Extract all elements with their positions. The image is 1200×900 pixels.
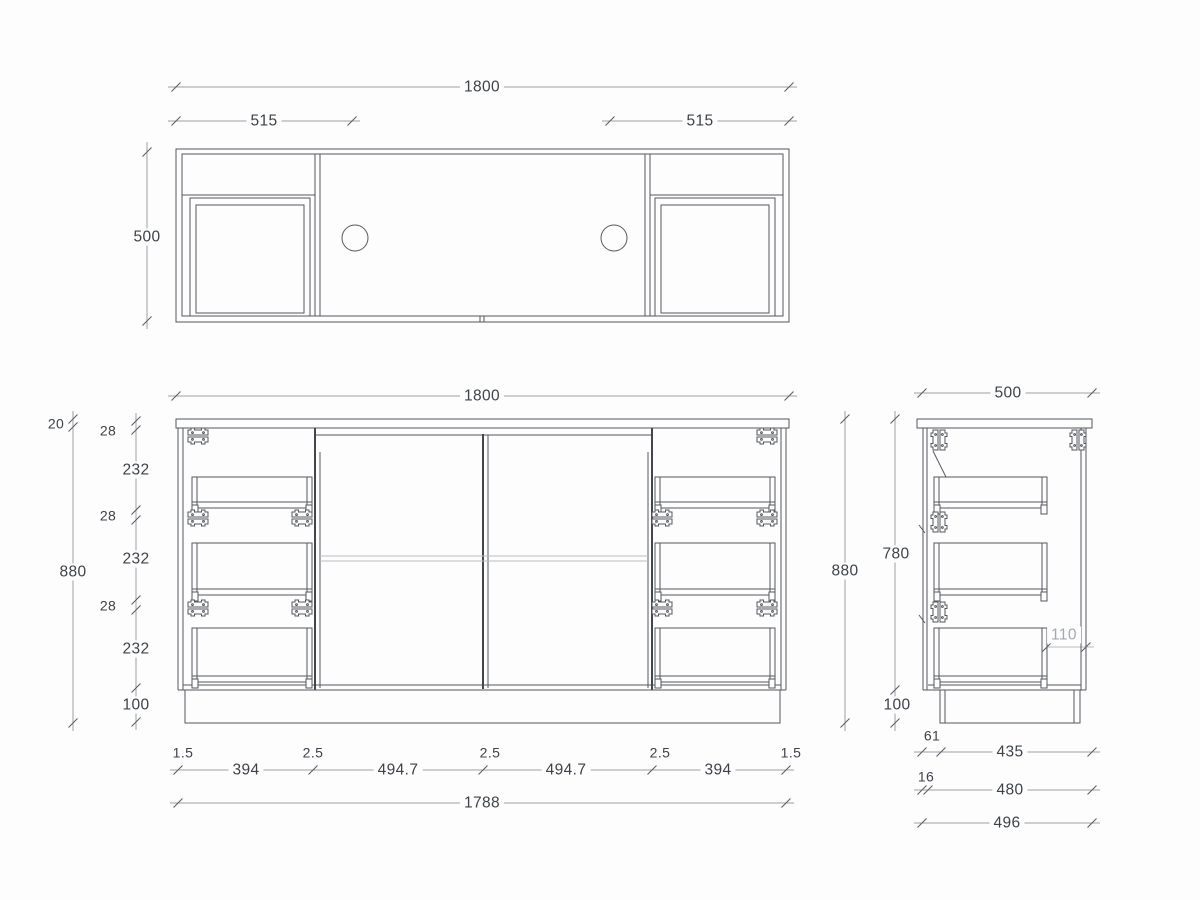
dim-front-height-880: 880 — [55, 563, 90, 580]
dim-front-kick-100: 100 — [118, 696, 153, 713]
dim-side-body-780: 780 — [878, 545, 913, 562]
dim-front-gap-center-2.5: 2.5 — [478, 745, 503, 760]
dim-front-overall-width: 1800 — [460, 387, 504, 404]
dim-front-drawerfront-right-394: 394 — [700, 761, 735, 778]
dim-front-edge-left-1.5: 1.5 — [171, 745, 196, 760]
dim-front-edge-right-1.5: 1.5 — [779, 745, 804, 760]
dim-front-drawer2-232: 232 — [118, 550, 153, 567]
dim-plan-left-515: 515 — [246, 112, 281, 129]
dim-side-panel-16: 16 — [916, 769, 936, 784]
dim-side-carcass-480: 480 — [992, 781, 1027, 798]
dim-front-gap-right-2.5: 2.5 — [648, 745, 673, 760]
dim-side-kickdepth-435: 435 — [992, 743, 1027, 760]
dim-front-carcass-1788: 1788 — [460, 794, 504, 811]
dim-side-clearance-110: 110 — [1047, 626, 1081, 643]
dim-front-drawerfront-left-394: 394 — [228, 761, 263, 778]
dim-front-gap1-28: 28 — [98, 423, 118, 438]
dim-side-depth-500: 500 — [990, 384, 1025, 401]
dim-side-overall-496: 496 — [989, 814, 1024, 831]
dim-front-drawer1-232: 232 — [118, 461, 153, 478]
dim-plan-depth-500: 500 — [129, 228, 164, 245]
dim-plan-right-515: 515 — [682, 112, 717, 129]
cabinet-drawing-svg — [0, 0, 1200, 900]
dim-side-recess-61: 61 — [922, 728, 942, 743]
dim-front-gap3-28: 28 — [98, 598, 118, 613]
dim-side-height-880: 880 — [827, 562, 862, 579]
dim-side-kick-100: 100 — [879, 696, 914, 713]
technical-drawing-canvas: 1800 515 515 500 1800 20 880 28 232 28 2… — [0, 0, 1200, 900]
dim-front-drawer3-232: 232 — [118, 640, 153, 657]
dim-front-gap-left-2.5: 2.5 — [301, 745, 326, 760]
drawing-geometry — [69, 83, 1101, 828]
dim-front-door-left-494.7: 494.7 — [374, 761, 423, 778]
dim-front-door-right-494.7: 494.7 — [542, 761, 591, 778]
dim-plan-overall-width: 1800 — [460, 78, 504, 95]
dim-front-countertop-20: 20 — [46, 416, 66, 431]
dim-front-gap2-28: 28 — [98, 508, 118, 523]
